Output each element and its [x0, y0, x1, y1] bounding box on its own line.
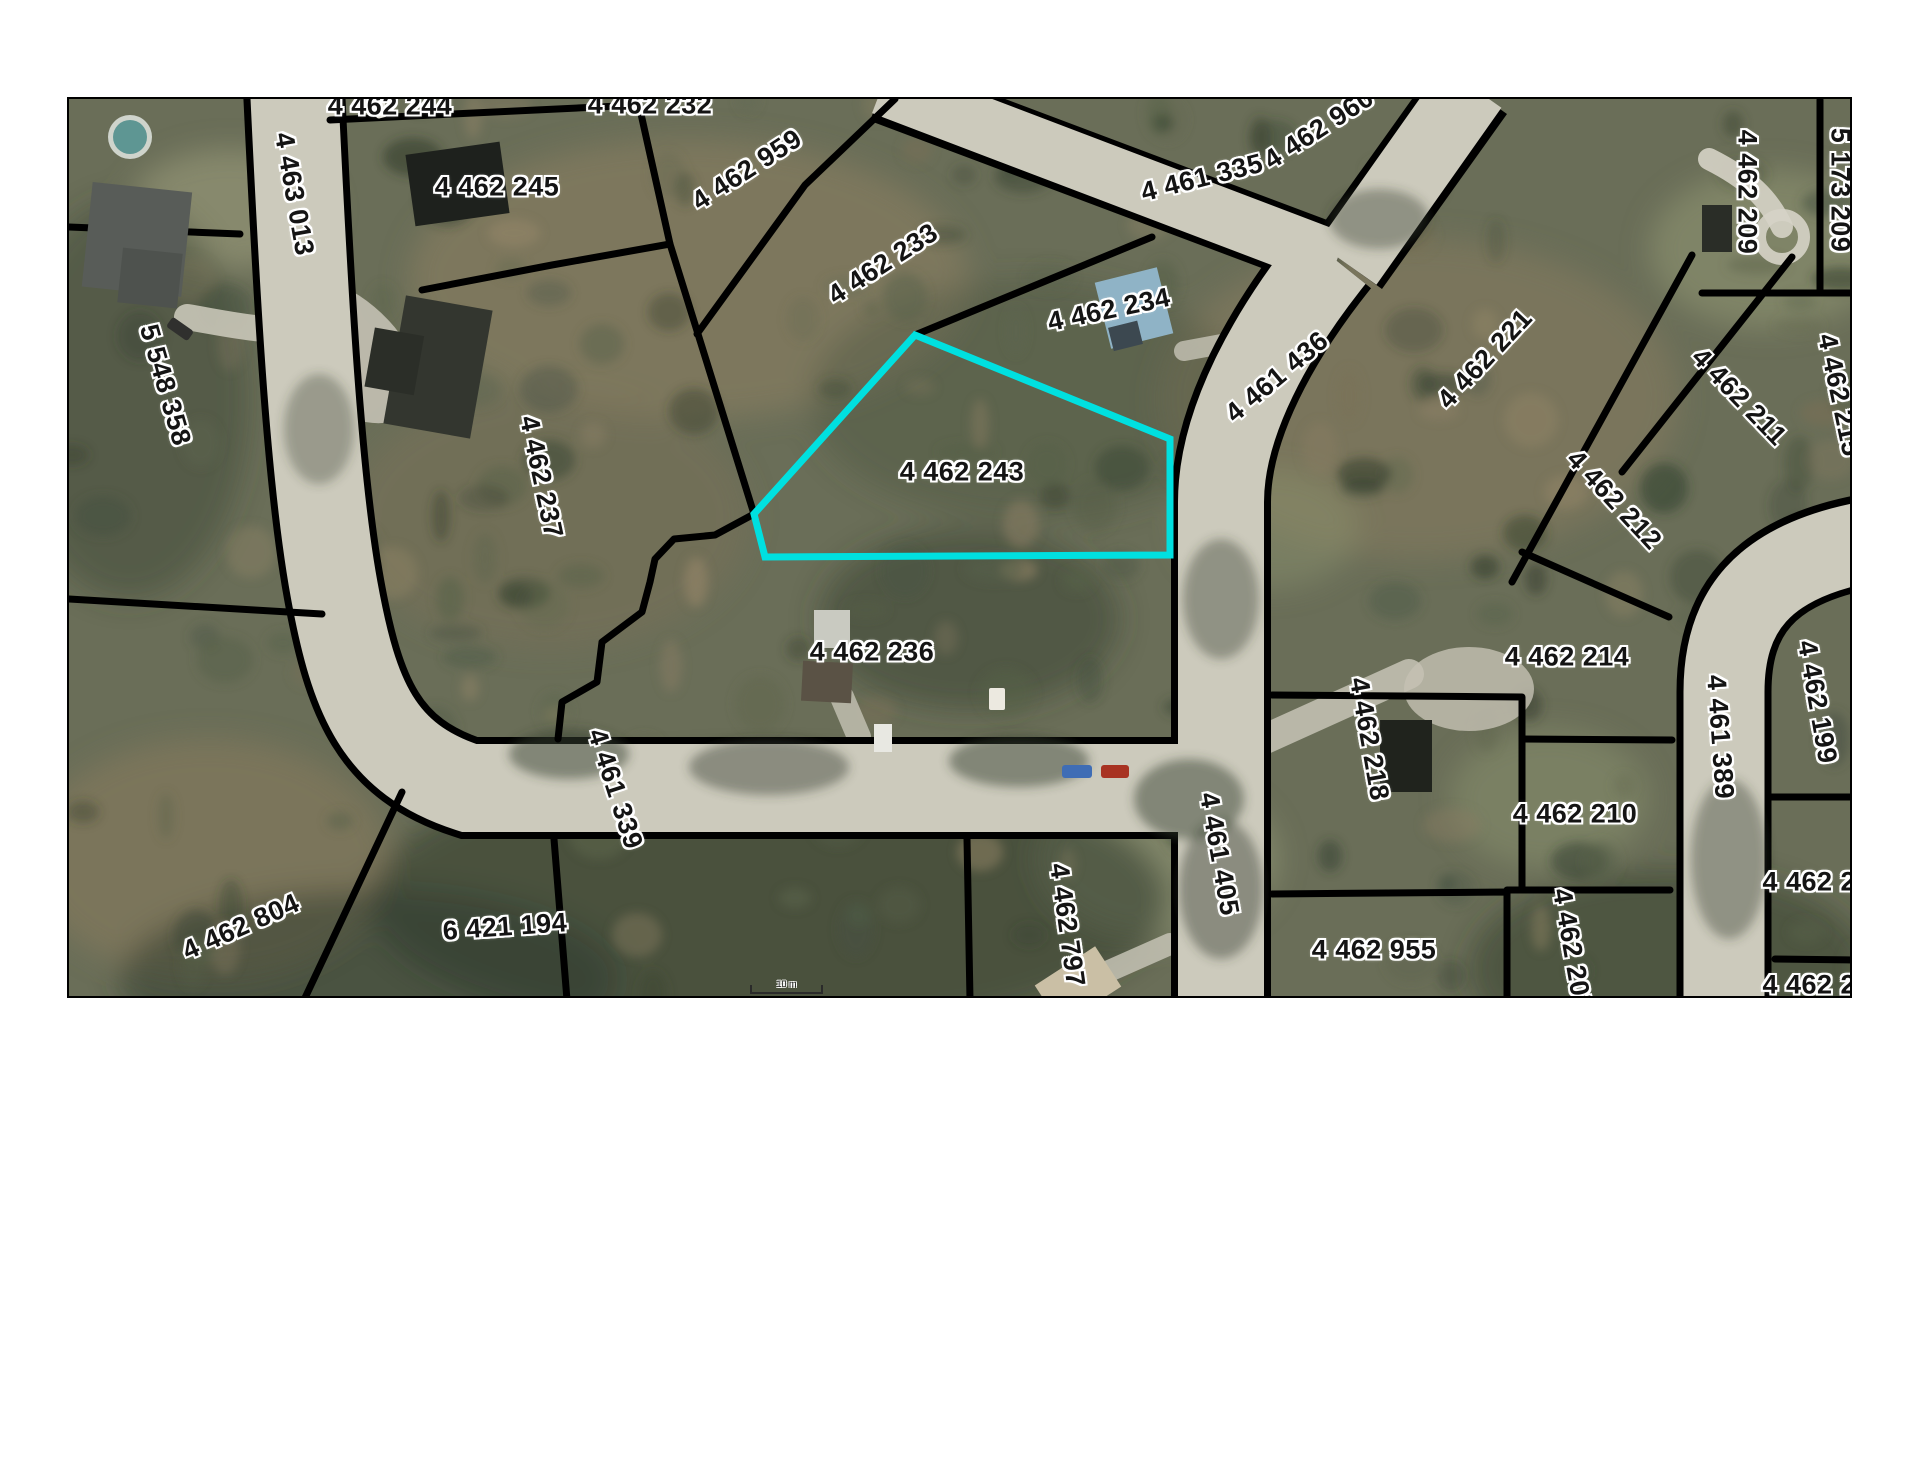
parcel-label: 4 462 244: [328, 97, 453, 120]
parcel-label: 4 462 236: [810, 639, 935, 666]
blue-car: [1062, 765, 1092, 778]
parcel-label: 4 462 245: [435, 174, 560, 201]
red-car: [1101, 765, 1129, 778]
parcel-label: 4 462 955: [1312, 937, 1437, 964]
parcel-label: 4 462 20: [1762, 869, 1852, 896]
parcel-map: 4 462 244 4 462 232 4 462 245 4 462 959 …: [67, 97, 1852, 998]
scale-bar-label: 10 m: [776, 980, 796, 989]
parcel-label: 4 462 210: [1513, 801, 1638, 828]
parcel-label: 5 173 209: [1827, 128, 1853, 253]
trailer: [874, 724, 892, 752]
map-canvas: [69, 99, 1852, 998]
parcel-label: 4 462 209: [1734, 130, 1761, 255]
house: [1702, 205, 1732, 252]
white-truck: [989, 688, 1005, 710]
highlighted-parcel-label: 4 462 243: [900, 459, 1025, 486]
house: [801, 661, 853, 704]
parcel-label: 4 462 20: [1762, 972, 1852, 999]
scale-bar: 10 m: [750, 985, 823, 994]
page: 4 462 244 4 462 232 4 462 245 4 462 959 …: [0, 0, 1920, 1483]
parcel-label: 4 462 214: [1505, 644, 1630, 671]
parcel-label: 4 462 232: [588, 97, 713, 119]
